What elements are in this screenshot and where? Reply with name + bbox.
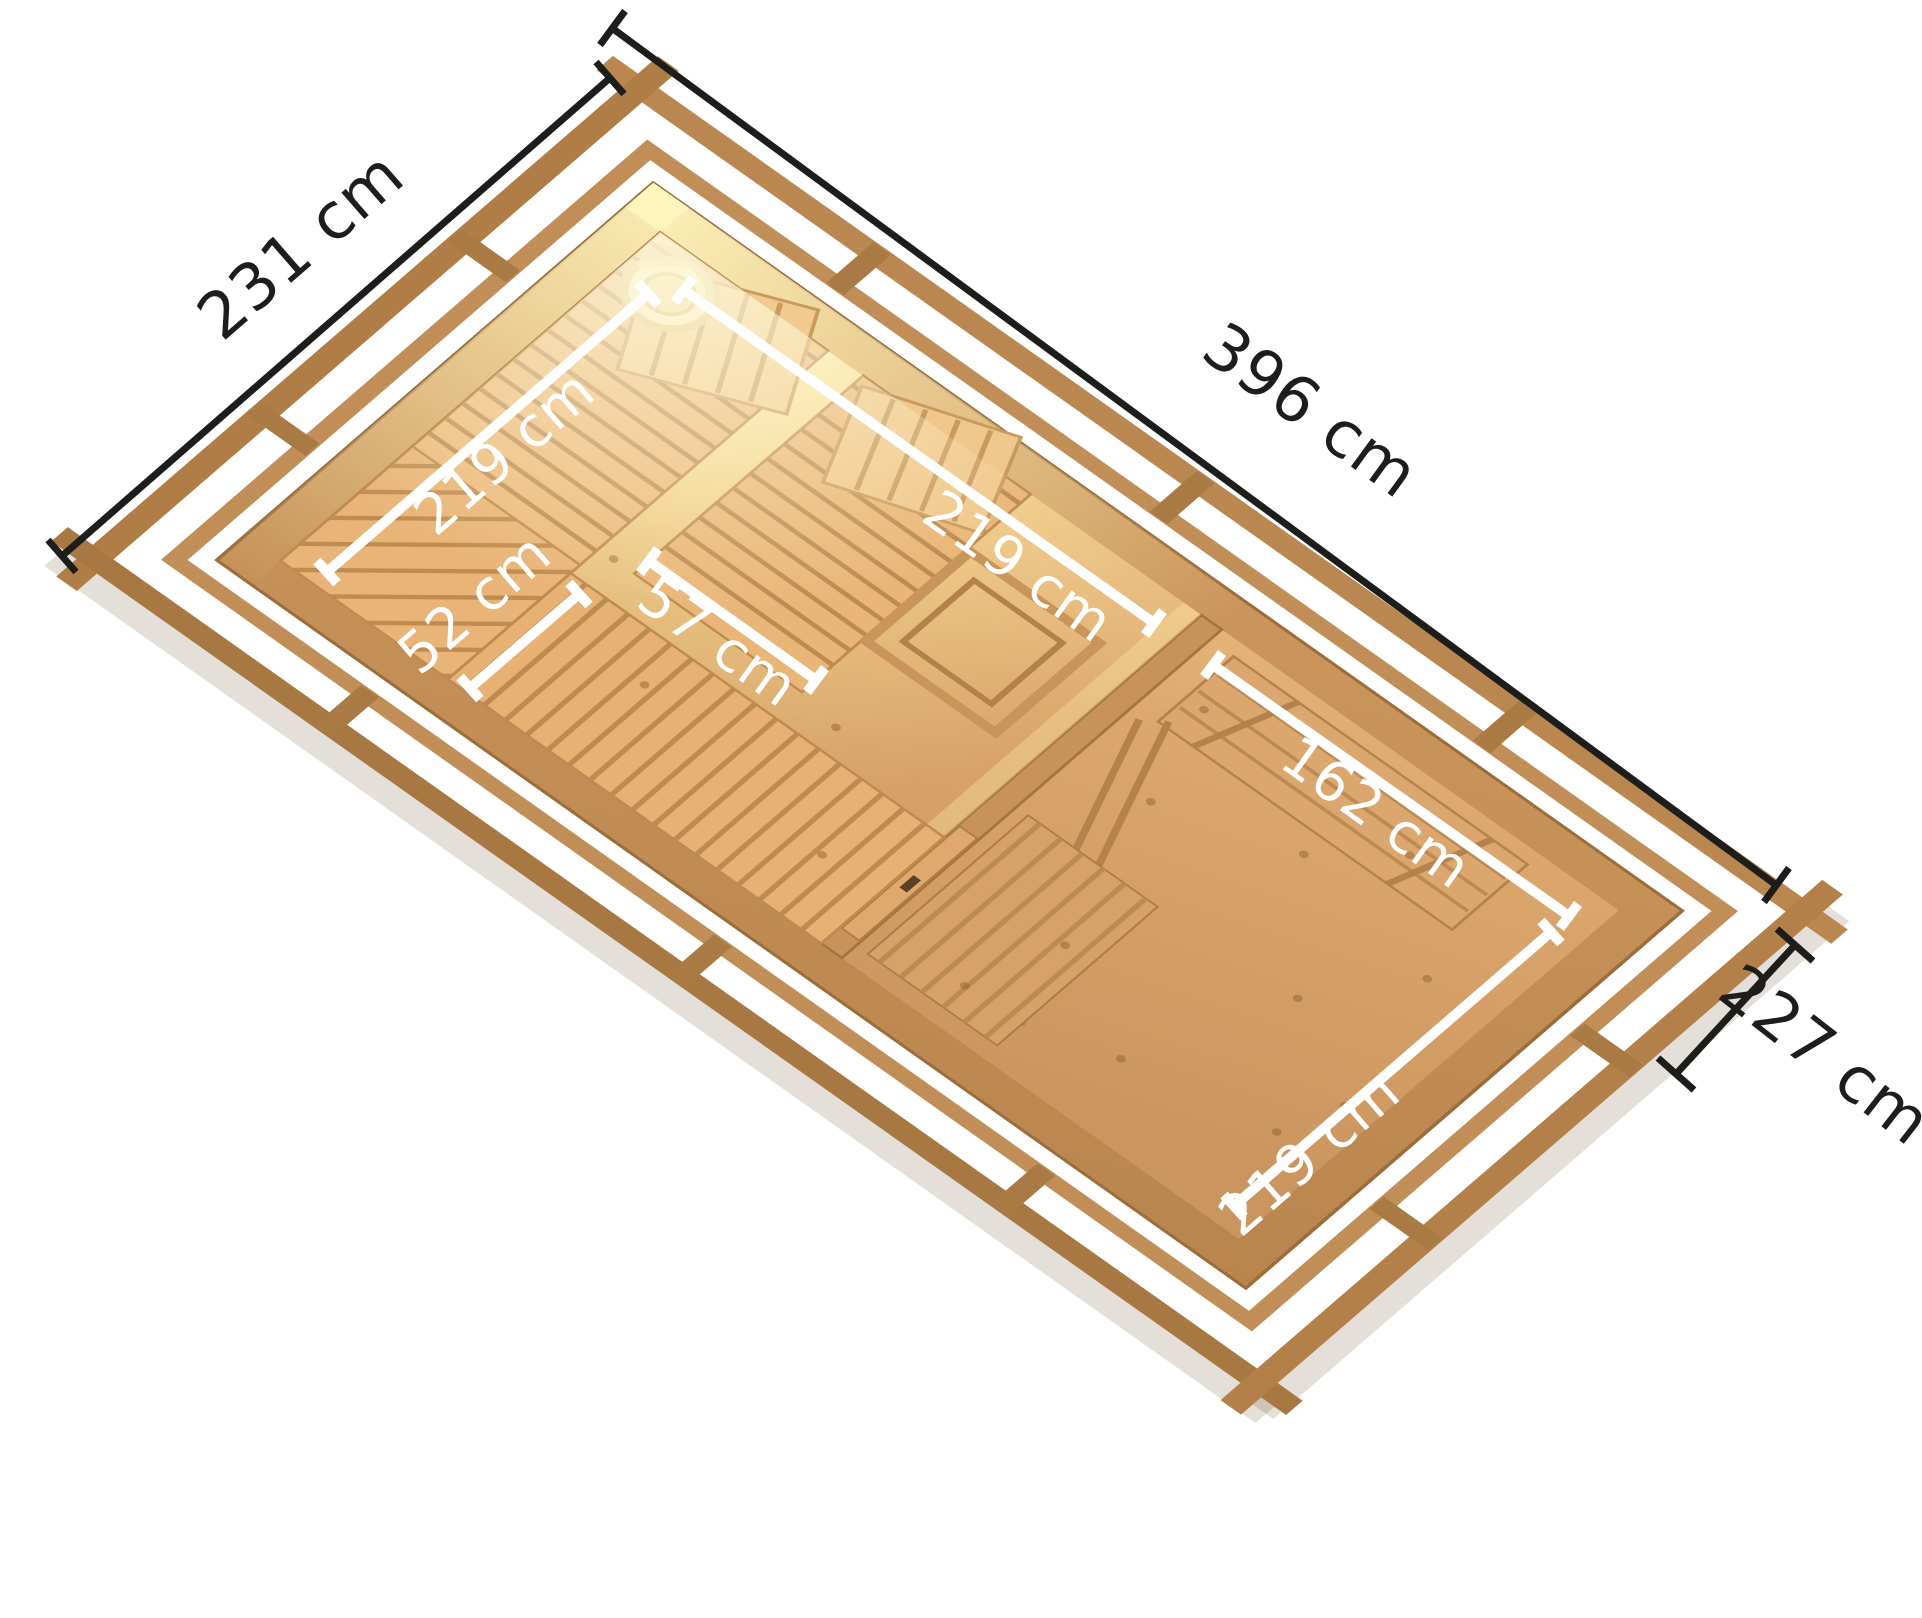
sauna-plan-figure: 231 cm 396 cm 227 cm 219 cm 57 cm 219 cm… — [0, 0, 1922, 1618]
dim-label-side-depth: 227 cm — [1705, 951, 1922, 1161]
